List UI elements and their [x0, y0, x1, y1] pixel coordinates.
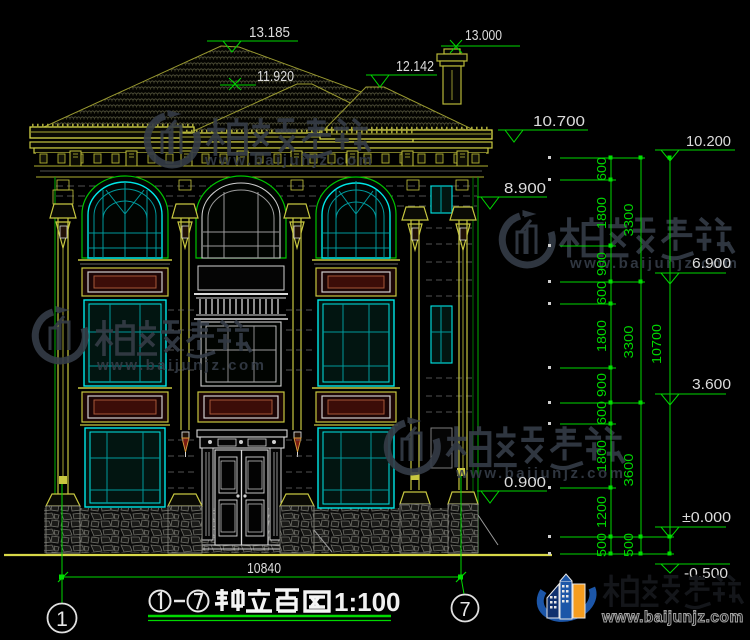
- svg-text:1800: 1800: [595, 440, 609, 472]
- svg-text:900: 900: [595, 252, 609, 276]
- svg-text:500: 500: [595, 533, 609, 557]
- svg-text:1800: 1800: [595, 197, 609, 229]
- svg-text:±0.000: ±0.000: [682, 510, 731, 526]
- svg-text:11.920: 11.920: [257, 69, 294, 85]
- svg-text:600: 600: [595, 157, 609, 181]
- svg-text:13.185: 13.185: [249, 25, 290, 41]
- svg-text:6.900: 6.900: [692, 256, 731, 272]
- svg-text:10.700: 10.700: [533, 114, 585, 130]
- svg-text:10700: 10700: [650, 324, 664, 364]
- svg-text:3300: 3300: [622, 203, 636, 236]
- svg-text:10.200: 10.200: [686, 134, 731, 150]
- svg-text:500: 500: [622, 533, 636, 557]
- svg-text:3600: 3600: [622, 453, 636, 486]
- svg-text:13.000: 13.000: [465, 28, 502, 44]
- svg-text:www.baijunjz.com: www.baijunjz.com: [601, 609, 744, 626]
- svg-text:1800: 1800: [595, 320, 609, 352]
- svg-text:10840: 10840: [247, 561, 281, 577]
- svg-text:900: 900: [595, 373, 609, 397]
- svg-text:600: 600: [595, 401, 609, 425]
- svg-text:12.142: 12.142: [396, 59, 434, 75]
- svg-text:3300: 3300: [622, 325, 636, 358]
- svg-text:0.900: 0.900: [504, 475, 546, 491]
- svg-text:8.900: 8.900: [504, 181, 546, 197]
- svg-text:1200: 1200: [595, 496, 609, 528]
- svg-text:1:100: 1:100: [334, 587, 401, 617]
- svg-text:1: 1: [56, 608, 68, 631]
- svg-text:3.600: 3.600: [692, 377, 731, 393]
- svg-text:7: 7: [459, 599, 470, 621]
- svg-text:600: 600: [595, 281, 609, 305]
